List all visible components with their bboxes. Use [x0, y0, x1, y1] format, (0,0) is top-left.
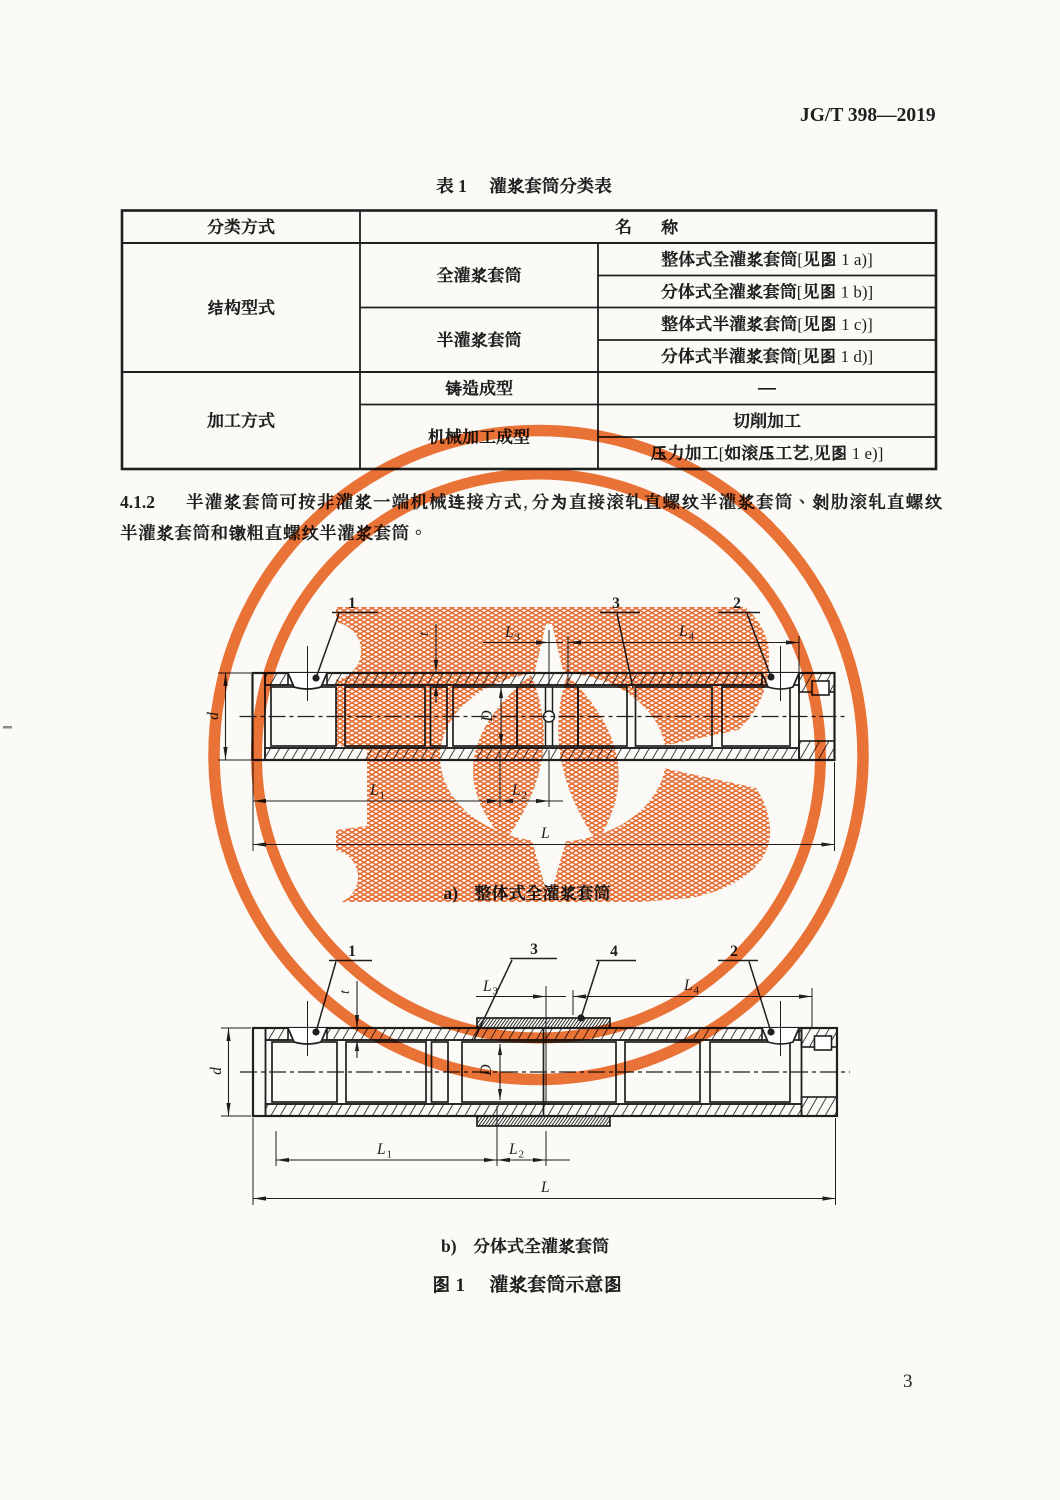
svg-text:[: [ — [797, 347, 803, 366]
svg-text:[: [ — [719, 444, 725, 463]
svg-text:d: d — [208, 1067, 225, 1075]
svg-text:1 c)]: 1 c)] — [837, 315, 873, 334]
svg-text:L: L — [376, 1141, 386, 1158]
svg-text:1 b)]: 1 b)] — [836, 283, 873, 302]
svg-text:[: [ — [797, 283, 803, 302]
svg-text:L: L — [508, 1141, 518, 1158]
svg-text:3: 3 — [493, 986, 499, 998]
svg-text:,: , — [809, 444, 813, 463]
svg-text:[: [ — [797, 315, 803, 334]
svg-text:3: 3 — [903, 1371, 913, 1392]
svg-text:2: 2 — [519, 1149, 525, 1161]
svg-text:b): b) — [441, 1236, 457, 1256]
svg-text:1 a)]: 1 a)] — [837, 250, 873, 269]
svg-text:L: L — [482, 978, 492, 995]
svg-text:[: [ — [797, 250, 803, 269]
svg-text:1 d)]: 1 d)] — [836, 347, 873, 366]
svg-text:1 e)]: 1 e)] — [848, 444, 884, 463]
svg-text:1: 1 — [387, 1149, 393, 1161]
svg-text:JG/T 398—2019: JG/T 398—2019 — [800, 105, 936, 126]
svg-text:1: 1 — [348, 943, 356, 960]
svg-text:1: 1 — [454, 176, 472, 196]
svg-text:1: 1 — [451, 1275, 470, 1296]
svg-text:4: 4 — [610, 943, 618, 960]
svg-text:3: 3 — [530, 941, 538, 958]
svg-text:L: L — [540, 1179, 550, 1196]
svg-text:4.1.2: 4.1.2 — [120, 492, 155, 512]
svg-text:t: t — [338, 989, 353, 994]
